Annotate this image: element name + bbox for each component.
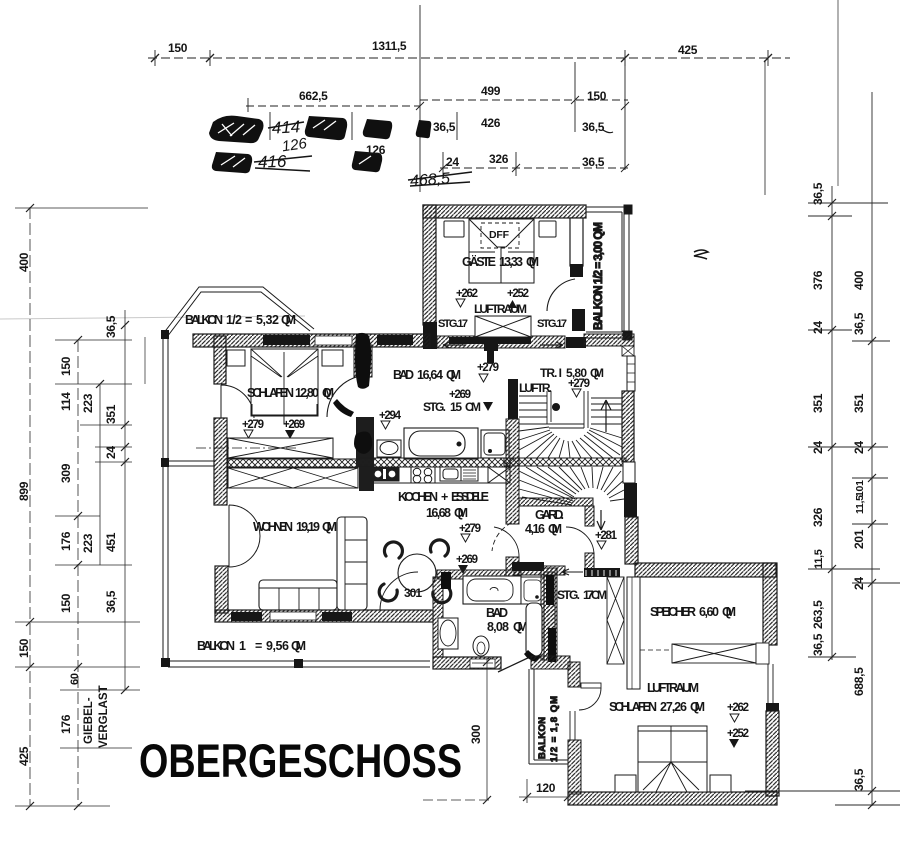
svg-text:13,33: 13,33	[499, 255, 523, 269]
svg-text:12,80: 12,80	[295, 386, 319, 400]
svg-text:60: 60	[69, 673, 81, 685]
svg-text:36,5: 36,5	[582, 120, 605, 134]
svg-text:11,5: 11,5	[813, 549, 825, 569]
svg-text:SPEICHER: SPEICHER	[650, 605, 696, 619]
svg-text:=: =	[245, 313, 252, 327]
svg-text:STG.17: STG.17	[438, 318, 468, 330]
svg-text:QM: QM	[548, 522, 562, 536]
svg-text:+269: +269	[456, 554, 478, 566]
svg-text:223: 223	[81, 393, 95, 413]
svg-text:150: 150	[59, 356, 73, 376]
svg-text:QM: QM	[291, 639, 306, 653]
svg-text:+262: +262	[456, 288, 478, 300]
svg-text:GÄSTE: GÄSTE	[462, 254, 496, 269]
svg-text:QM: QM	[322, 520, 337, 534]
svg-text:1311,5: 1311,5	[372, 39, 407, 53]
svg-text:SCHLAFEN: SCHLAFEN	[609, 700, 657, 714]
svg-text:376: 376	[811, 270, 825, 290]
svg-text:24: 24	[852, 441, 866, 454]
svg-text:LUFTRAUM: LUFTRAUM	[474, 302, 527, 316]
svg-text:426: 426	[481, 116, 501, 130]
svg-text:400: 400	[17, 252, 31, 272]
svg-text:+262: +262	[727, 702, 749, 714]
svg-text:5,32: 5,32	[256, 313, 279, 327]
svg-text:24: 24	[852, 577, 866, 590]
svg-text:688,5: 688,5	[852, 667, 866, 696]
svg-text:176: 176	[59, 531, 73, 551]
svg-text:19,19: 19,19	[296, 520, 320, 534]
svg-text:223: 223	[81, 533, 95, 553]
svg-text:351: 351	[811, 393, 825, 413]
svg-text:QM: QM	[281, 313, 296, 327]
svg-text:+279: +279	[242, 419, 264, 431]
svg-text:KOCHEN: KOCHEN	[398, 490, 438, 504]
svg-text:150: 150	[17, 638, 31, 658]
svg-text:GARD.: GARD.	[535, 508, 564, 522]
svg-text:36,5: 36,5	[104, 315, 118, 338]
svg-text:24: 24	[811, 441, 825, 454]
svg-text:400: 400	[852, 270, 866, 290]
svg-text:150: 150	[168, 41, 188, 55]
svg-text:+269: +269	[283, 419, 305, 431]
svg-text:+: +	[441, 490, 448, 504]
svg-text:1/2: 1/2	[226, 313, 242, 327]
svg-text:+279: +279	[477, 362, 499, 374]
svg-text:300: 300	[469, 724, 483, 744]
svg-text:BALKON: BALKON	[537, 717, 548, 759]
svg-text:BAD: BAD	[486, 606, 508, 620]
svg-text:150: 150	[59, 593, 73, 613]
svg-text:QM: QM	[590, 366, 604, 380]
svg-text:176: 176	[59, 714, 73, 734]
svg-text:DFF: DFF	[489, 229, 510, 241]
svg-text:15: 15	[450, 400, 462, 414]
svg-text:16,64: 16,64	[417, 368, 443, 382]
svg-text:36,5: 36,5	[582, 155, 605, 169]
svg-text:CM: CM	[465, 400, 481, 414]
svg-text:414: 414	[271, 117, 300, 137]
svg-text:+252: +252	[507, 288, 529, 300]
svg-text:301: 301	[404, 586, 422, 600]
svg-text:326: 326	[489, 152, 509, 166]
svg-text:STG.: STG.	[423, 400, 446, 414]
svg-text:120: 120	[536, 781, 556, 795]
svg-text:LUFTRAUM: LUFTRAUM	[647, 681, 699, 695]
svg-text:16,68: 16,68	[426, 506, 451, 520]
svg-text:VERGLAST: VERGLAST	[98, 685, 110, 748]
svg-text:263,5: 263,5	[811, 600, 825, 629]
svg-text:114: 114	[59, 392, 73, 411]
svg-text:468,5: 468,5	[409, 170, 450, 190]
svg-text:8,08: 8,08	[487, 620, 509, 634]
svg-text:OBERGESCHOSS: OBERGESCHOSS	[139, 735, 462, 788]
svg-text:BALKON: BALKON	[185, 313, 223, 327]
svg-text:101: 101	[854, 480, 866, 497]
svg-text:9,56: 9,56	[266, 639, 289, 653]
svg-text:SCHLAFEN: SCHLAFEN	[247, 386, 294, 400]
svg-text:+279: +279	[568, 378, 590, 390]
svg-text:BALKON 1/2 = 3,00 QM: BALKON 1/2 = 3,00 QM	[593, 222, 605, 330]
svg-text:150: 150	[587, 89, 607, 103]
svg-text:309: 309	[59, 463, 73, 483]
svg-text:QM: QM	[454, 506, 468, 520]
svg-text:QM: QM	[526, 255, 539, 269]
svg-text:326: 326	[811, 507, 825, 527]
svg-text:11,5: 11,5	[854, 495, 866, 514]
svg-text:+279: +279	[459, 523, 481, 535]
svg-text:17CM: 17CM	[583, 588, 607, 602]
svg-text:126: 126	[366, 143, 386, 157]
svg-text:451: 451	[104, 532, 118, 552]
svg-text:+294: +294	[379, 410, 402, 422]
svg-text:4,16: 4,16	[525, 522, 545, 536]
svg-text:BALKON: BALKON	[197, 639, 235, 653]
svg-text:QM: QM	[446, 368, 461, 382]
svg-text:6,60: 6,60	[699, 605, 719, 619]
svg-text:QM: QM	[722, 605, 736, 619]
svg-text:QM: QM	[690, 700, 705, 714]
svg-text:24: 24	[446, 155, 459, 169]
svg-text:662,5: 662,5	[299, 89, 328, 103]
svg-text:+281: +281	[595, 530, 618, 542]
svg-text:24: 24	[104, 446, 118, 459]
svg-text:36,5: 36,5	[104, 590, 118, 613]
svg-text:1: 1	[239, 639, 246, 653]
svg-text:499: 499	[481, 84, 501, 98]
svg-text:36,5: 36,5	[852, 768, 866, 791]
svg-text:351: 351	[852, 393, 866, 413]
svg-text:1/2 = 1,8 QM: 1/2 = 1,8 QM	[549, 696, 560, 762]
svg-text:27,26: 27,26	[660, 700, 687, 714]
svg-text:QM: QM	[322, 386, 334, 400]
svg-text:899: 899	[17, 481, 31, 501]
svg-text:TR. I: TR. I	[540, 366, 562, 380]
svg-text:425: 425	[17, 746, 31, 766]
svg-text:=: =	[255, 639, 262, 653]
svg-text:425: 425	[678, 43, 698, 57]
svg-text:GIEBEL-: GIEBEL-	[83, 697, 95, 744]
svg-text:351: 351	[104, 404, 118, 424]
svg-text:BAD: BAD	[393, 368, 414, 382]
svg-text:ESSDIELE: ESSDIELE	[451, 490, 489, 504]
svg-text:+252: +252	[727, 728, 749, 740]
svg-text:STG.17: STG.17	[537, 318, 567, 330]
svg-text:36,5: 36,5	[811, 182, 825, 205]
svg-text:24: 24	[811, 321, 825, 334]
svg-text:36,5: 36,5	[811, 633, 825, 656]
svg-text:36,5: 36,5	[433, 120, 456, 134]
svg-text:36,5: 36,5	[852, 312, 866, 335]
svg-text:201: 201	[852, 529, 866, 549]
svg-text:STG.: STG.	[557, 588, 580, 602]
